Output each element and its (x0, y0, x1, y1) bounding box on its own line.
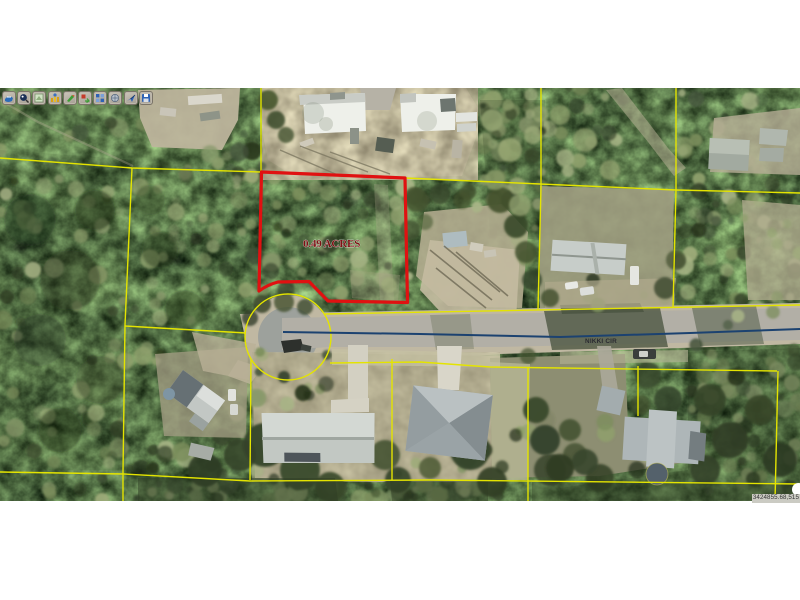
svg-text:NIKKI CIR: NIKKI CIR (585, 338, 617, 345)
svg-text:0.49 ACRES: 0.49 ACRES (303, 238, 360, 250)
